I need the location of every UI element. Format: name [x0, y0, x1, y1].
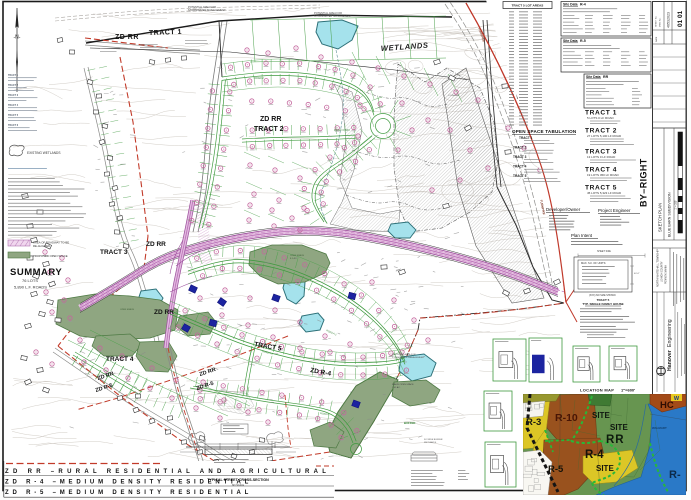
- svg-text:46532023: 46532023: [667, 12, 671, 28]
- svg-text:NORTH WHITEHALL TOWNSHIP: NORTH WHITEHALL TOWNSHIP: [657, 249, 660, 287]
- svg-text:Site Data: Site Data: [563, 39, 578, 43]
- svg-text:45 LOTS 5,323 LF ROAD: 45 LOTS 5,323 LF ROAD: [587, 191, 622, 195]
- svg-text:Project Engineer: Project Engineer: [598, 208, 631, 213]
- svg-text:RE-ALIGNED: RE-ALIGNED: [33, 244, 50, 248]
- svg-text:R-: R-: [669, 469, 681, 481]
- svg-text:TRACT 5: TRACT 5: [513, 174, 527, 178]
- svg-text:19 LOTS 450 LF ROAD: 19 LOTS 450 LF ROAD: [587, 173, 620, 177]
- svg-text:LEHIGH COUNTY: LEHIGH COUNTY: [661, 261, 664, 282]
- svg-text:ROAD 2: ROAD 2: [254, 76, 264, 80]
- svg-text:1.41 AC.: 1.41 AC.: [392, 386, 401, 389]
- svg-text:SITE: SITE: [610, 423, 628, 432]
- svg-text:TRACT 4: TRACT 4: [8, 104, 19, 107]
- svg-text:TYP. SINGLE FAMILY HOUSE: TYP. SINGLE FAMILY HOUSE: [582, 302, 623, 306]
- svg-text:ROAD 3 WAY: ROAD 3 WAY: [334, 128, 350, 132]
- svg-text:TRACT 3: TRACT 3: [513, 155, 527, 159]
- svg-text:ZD RR: ZD RR: [154, 309, 174, 316]
- svg-text:WETLANDS: WETLANDS: [424, 441, 437, 444]
- svg-text:JOHN DOE: JOHN DOE: [448, 95, 460, 97]
- svg-text:RR: RR: [603, 75, 609, 79]
- svg-text:50’ WIDE BUFFER: 50’ WIDE BUFFER: [424, 439, 443, 441]
- svg-text:R-10: R-10: [555, 412, 578, 424]
- svg-text:OPEN SPACE: OPEN SPACE: [120, 308, 135, 311]
- svg-text:TRACT 3: TRACT 3: [8, 94, 19, 97]
- svg-text:Site Data: Site Data: [586, 75, 601, 79]
- svg-text:Plan Intent: Plan Intent: [571, 233, 593, 238]
- svg-text:Hanover: Hanover: [667, 350, 673, 371]
- svg-text:R-3: R-3: [526, 417, 541, 428]
- svg-text:R-5: R-5: [580, 39, 586, 43]
- svg-text:40'-0″: 40'-0″: [634, 273, 640, 275]
- svg-text:5 LOTS 0 LF ROAD: 5 LOTS 0 LF ROAD: [587, 116, 615, 120]
- svg-text:TRACT 2: TRACT 2: [254, 126, 284, 133]
- svg-text:SHEET SIZE: SHEET SIZE: [597, 250, 611, 253]
- svg-text:TRACT 4: TRACT 4: [513, 165, 527, 169]
- svg-text:TYPICAL STREET CROSS-SECTION: TYPICAL STREET CROSS-SECTION: [207, 478, 269, 482]
- svg-text:SITE: SITE: [592, 411, 610, 420]
- svg-text:R-4: R-4: [585, 449, 604, 461]
- svg-text:DWG No.: DWG No.: [660, 17, 662, 27]
- svg-text:5,890 L.F. ROADS: 5,890 L.F. ROADS: [14, 285, 47, 290]
- svg-text:POTENTIAL AREA FOR: POTENTIAL AREA FOR: [392, 353, 416, 356]
- svg-text:MAX. S.F. OF UNITS:: MAX. S.F. OF UNITS:: [581, 261, 606, 265]
- svg-text:Developer/Owner: Developer/Owner: [546, 207, 581, 212]
- svg-text:WALMART: WALMART: [652, 426, 667, 430]
- svg-text:76 LOTS: 76 LOTS: [22, 278, 38, 283]
- svg-text:STORMWATER MANAGEMENT: STORMWATER MANAGEMENT: [314, 14, 352, 18]
- svg-text:1″ = 200′: 1″ = 200′: [675, 200, 678, 210]
- svg-text:TRACT 2: TRACT 2: [8, 84, 19, 87]
- svg-text:RR: RR: [606, 434, 625, 446]
- svg-text:NO SCALE: NO SCALE: [232, 484, 244, 487]
- svg-text:PROPOSED OPEN SPACE: PROPOSED OPEN SPACE: [33, 254, 68, 258]
- svg-text:W: W: [674, 396, 680, 402]
- svg-text:(XXX) NO SIZE SHOWN: (XXX) NO SIZE SHOWN: [589, 294, 616, 297]
- svg-text:TRACT 5: TRACT 5: [8, 114, 19, 117]
- svg-text:LOCATION MAP: LOCATION MAP: [580, 388, 614, 393]
- svg-text:BUFFER: BUFFER: [404, 421, 415, 425]
- svg-text:TRACT 4: TRACT 4: [106, 356, 134, 363]
- svg-text:ZD R-5 –MEDIUM DENSITY RESIDEN: ZD R-5 –MEDIUM DENSITY RESIDENTIAL: [5, 490, 252, 496]
- svg-text:OPEN SPACE: OPEN SPACE: [290, 254, 305, 257]
- svg-text:PENNSYLVANIA: PENNSYLVANIA: [665, 265, 668, 284]
- svg-text:13 LOTS 0 LF ROAD: 13 LOTS 0 LF ROAD: [587, 155, 616, 159]
- svg-text:SHEET No.: SHEET No.: [656, 15, 658, 27]
- svg-text:TRACT 1: TRACT 1: [149, 29, 182, 37]
- svg-text:TRACT 5 LOT AREAS: TRACT 5 LOT AREAS: [512, 4, 544, 8]
- svg-text:R-5: R-5: [548, 464, 564, 475]
- svg-text:WAIVE OPEN SPACE: WAIVE OPEN SPACE: [392, 383, 414, 386]
- svg-text:TRACT 1: TRACT 1: [519, 136, 533, 140]
- svg-text:-N-: -N-: [14, 35, 21, 41]
- svg-text:BY–RIGHT: BY–RIGHT: [639, 158, 649, 207]
- svg-text:ZD RR: ZD RR: [115, 34, 139, 41]
- svg-text:1″=600′: 1″=600′: [621, 388, 635, 393]
- svg-text:ZD RR: ZD RR: [146, 241, 166, 248]
- svg-text:EXISTING WETLANDS: EXISTING WETLANDS: [27, 151, 60, 155]
- svg-text:27 LOTS 5,100 LF ROAD: 27 LOTS 5,100 LF ROAD: [587, 134, 622, 138]
- svg-text:01 01: 01 01: [677, 10, 684, 27]
- svg-text:R-4: R-4: [580, 3, 586, 7]
- svg-text:SITE: SITE: [596, 464, 614, 473]
- svg-text:STORMWATER MANAGEMENT: STORMWATER MANAGEMENT: [392, 356, 424, 359]
- svg-text:TRACT 2: TRACT 2: [513, 146, 527, 150]
- svg-text:Engineering: Engineering: [667, 319, 673, 347]
- svg-text:Site Data: Site Data: [563, 3, 578, 7]
- svg-text:SUMMARY: SUMMARY: [10, 267, 62, 278]
- svg-text:ZD RR: ZD RR: [260, 116, 281, 123]
- svg-text:TRACT 6: TRACT 6: [8, 124, 19, 127]
- svg-text:STORMWATER MANAGEMENT: STORMWATER MANAGEMENT: [188, 8, 226, 12]
- svg-text:DATE: DATE: [655, 36, 658, 42]
- svg-text:OPEN SPACE TABULATION: OPEN SPACE TABULATION: [512, 129, 577, 134]
- svg-text:TRACT 3: TRACT 3: [100, 249, 128, 256]
- svg-text:HC: HC: [660, 400, 674, 411]
- svg-text:BLUE BARN SUBDIVISION: BLUE BARN SUBDIVISION: [668, 192, 672, 237]
- svg-text:TRACT 1: TRACT 1: [8, 74, 19, 77]
- svg-text:ZD RR –RURAL RESIDENTIAL AND A: ZD RR –RURAL RESIDENTIAL AND AGRICULTURA…: [5, 469, 330, 475]
- svg-text:SKETCH PLAN: SKETCH PLAN: [658, 203, 663, 232]
